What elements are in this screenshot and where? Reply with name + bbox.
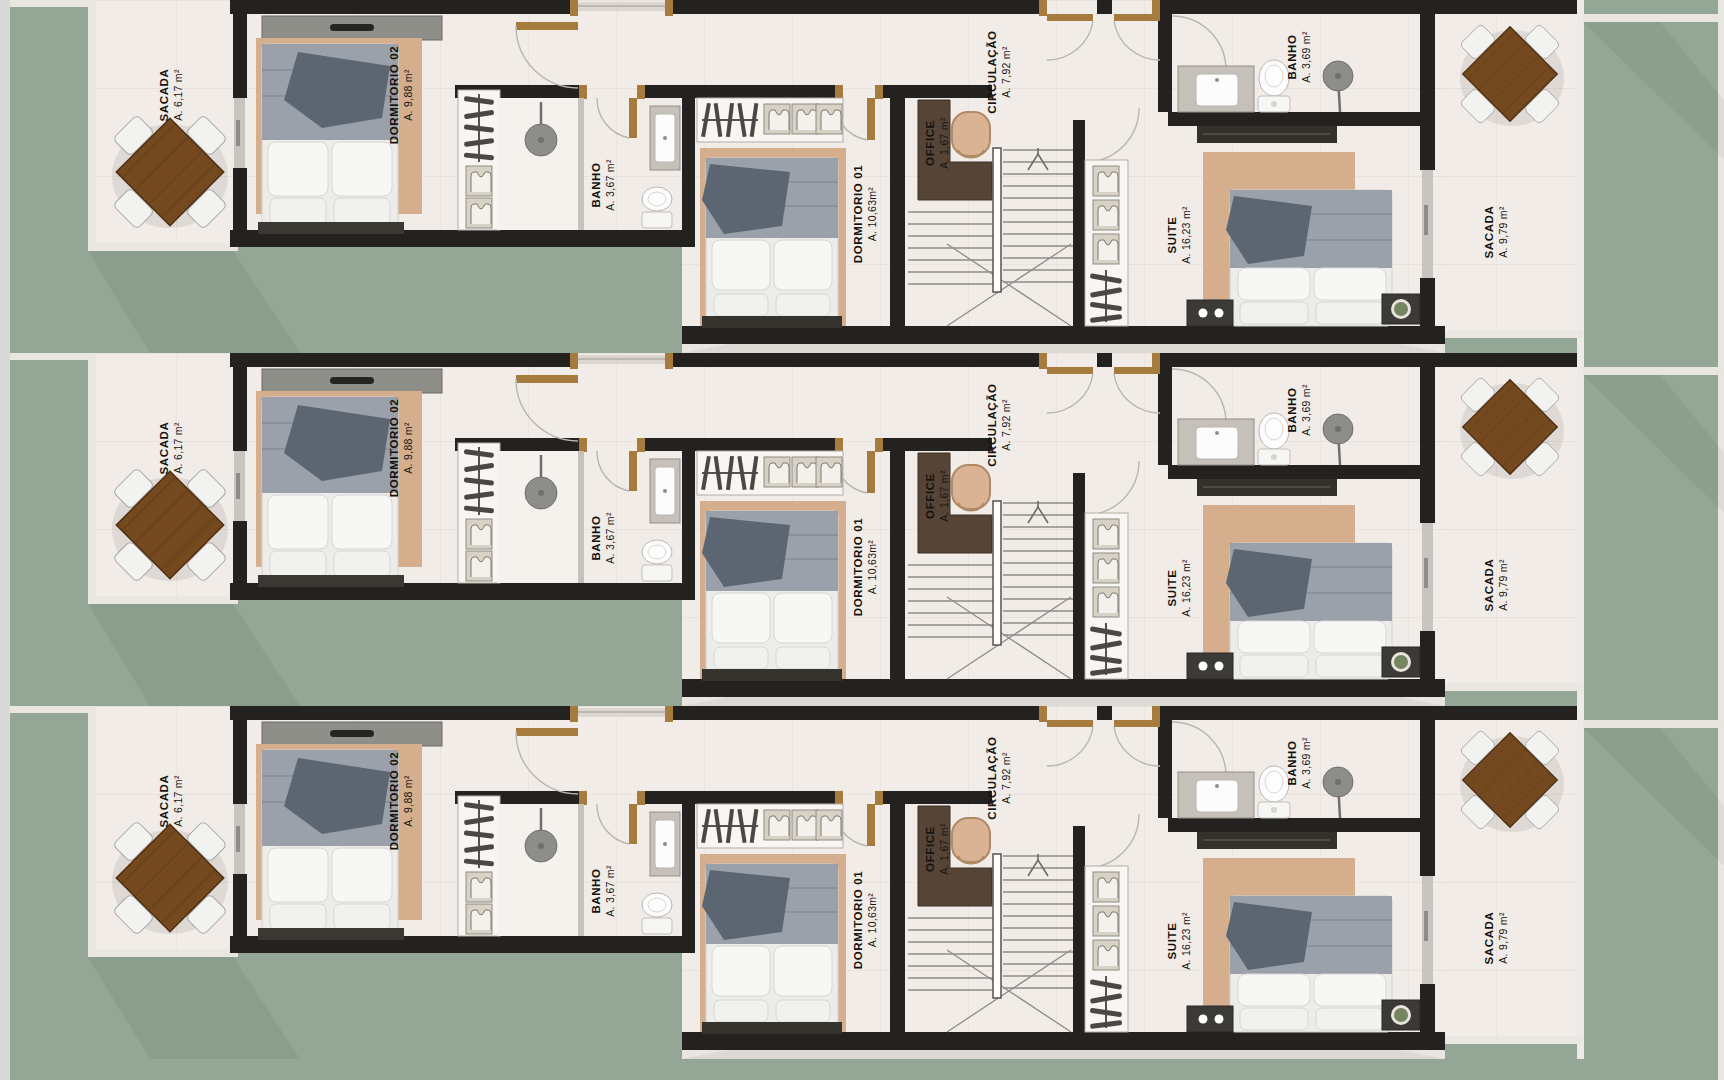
plot-edge-right <box>1718 0 1724 1080</box>
plot-edge-left <box>0 0 10 1080</box>
floor-plan-canvas: SACADA A. 6,17 m² DORMITORIO 02 A. 9,88 … <box>0 0 1724 1080</box>
floor-plan-svg: SACADA A. 6,17 m² DORMITORIO 02 A. 9,88 … <box>0 0 1724 1080</box>
